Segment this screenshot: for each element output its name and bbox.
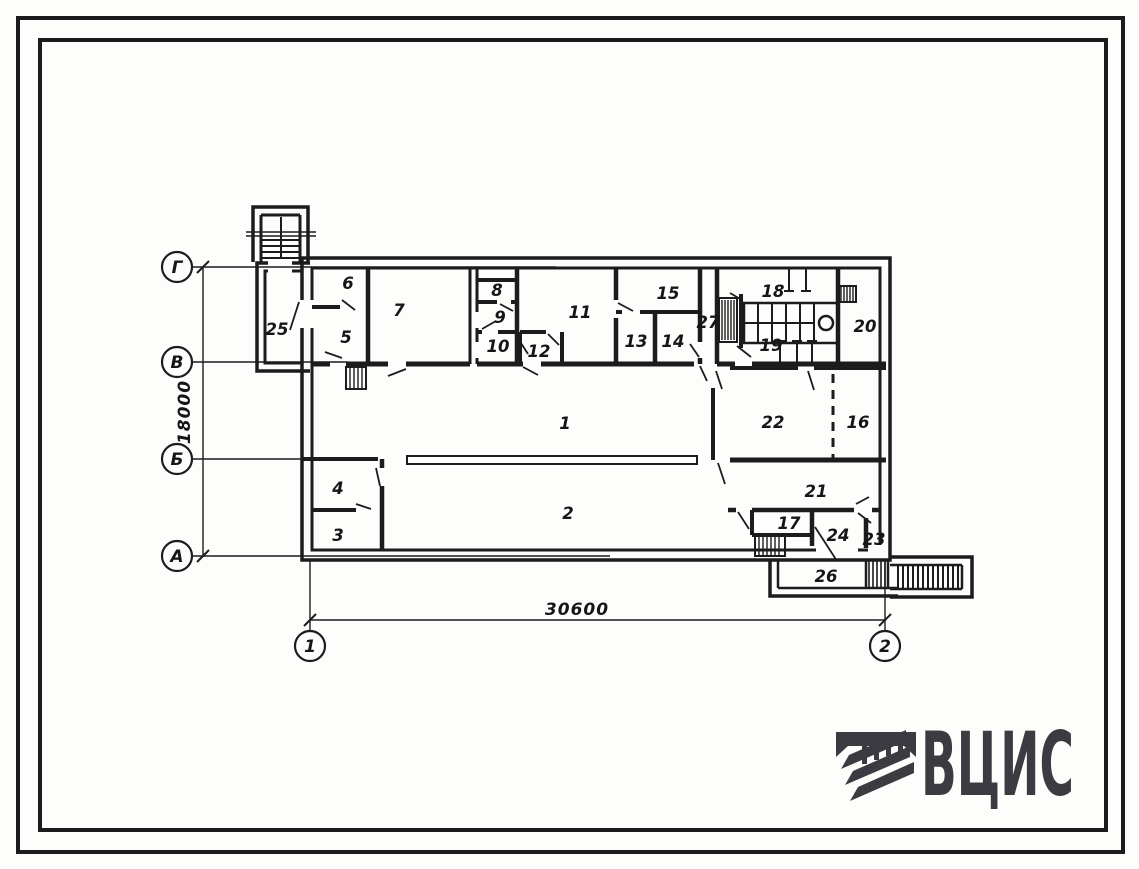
room-label-13: 13 [625, 332, 648, 351]
room-label-12: 12 [528, 342, 551, 361]
row-axis-label-a: А [168, 547, 183, 567]
room-label-15: 15 [657, 284, 680, 303]
room-label-25: 25 [266, 320, 289, 339]
room-label-26: 26 [815, 567, 838, 586]
room-label-16: 16 [847, 413, 870, 432]
row-axis-label-v: В [171, 353, 184, 373]
col-axis-label-1: 1 [304, 637, 316, 657]
room-label-22: 22 [762, 413, 785, 432]
room-label-1: 1 [559, 414, 570, 433]
room-labels: 1 2 3 4 5 6 7 8 9 10 11 12 13 14 15 16 1… [266, 274, 886, 586]
col-axis-label-2: 2 [879, 637, 891, 657]
interior-walls [302, 268, 886, 550]
vcis-logo-text: ВЦИС [921, 713, 1074, 816]
room-label-24: 24 [827, 526, 850, 545]
room-label-23: 23 [863, 530, 886, 549]
room-label-7: 7 [393, 301, 405, 320]
room-label-21: 21 [805, 482, 828, 501]
room-label-5: 5 [340, 328, 351, 347]
drawing-sheet: Г В Б А 1 2 30600 18000 1 2 3 4 5 6 7 8 … [0, 0, 1139, 869]
vcis-logo: ВЦИС [836, 713, 1074, 816]
row-axis-label-g: Г [172, 258, 184, 278]
room-label-14: 14 [662, 332, 685, 351]
row-axis-label-b: Б [171, 450, 184, 470]
room-label-4: 4 [331, 479, 343, 498]
room-label-20: 20 [854, 317, 877, 336]
room-label-8: 8 [491, 281, 502, 300]
room-label-27: 27 [697, 313, 720, 332]
floor-plan-drawing: Г В Б А 1 2 30600 18000 1 2 3 4 5 6 7 8 … [0, 0, 1139, 869]
vcis-logo-icon [836, 730, 916, 801]
room-label-18: 18 [762, 282, 785, 301]
dimension-height: 18000 [175, 380, 195, 444]
room-label-19: 19 [760, 336, 783, 355]
room-label-9: 9 [494, 308, 505, 327]
room-label-3: 3 [332, 526, 343, 545]
room-label-2: 2 [562, 504, 573, 523]
dimension-width: 30600 [545, 600, 609, 620]
room-label-17: 17 [778, 514, 801, 533]
room-label-6: 6 [342, 274, 353, 293]
room-label-11: 11 [569, 303, 592, 322]
room-label-10: 10 [487, 337, 510, 356]
